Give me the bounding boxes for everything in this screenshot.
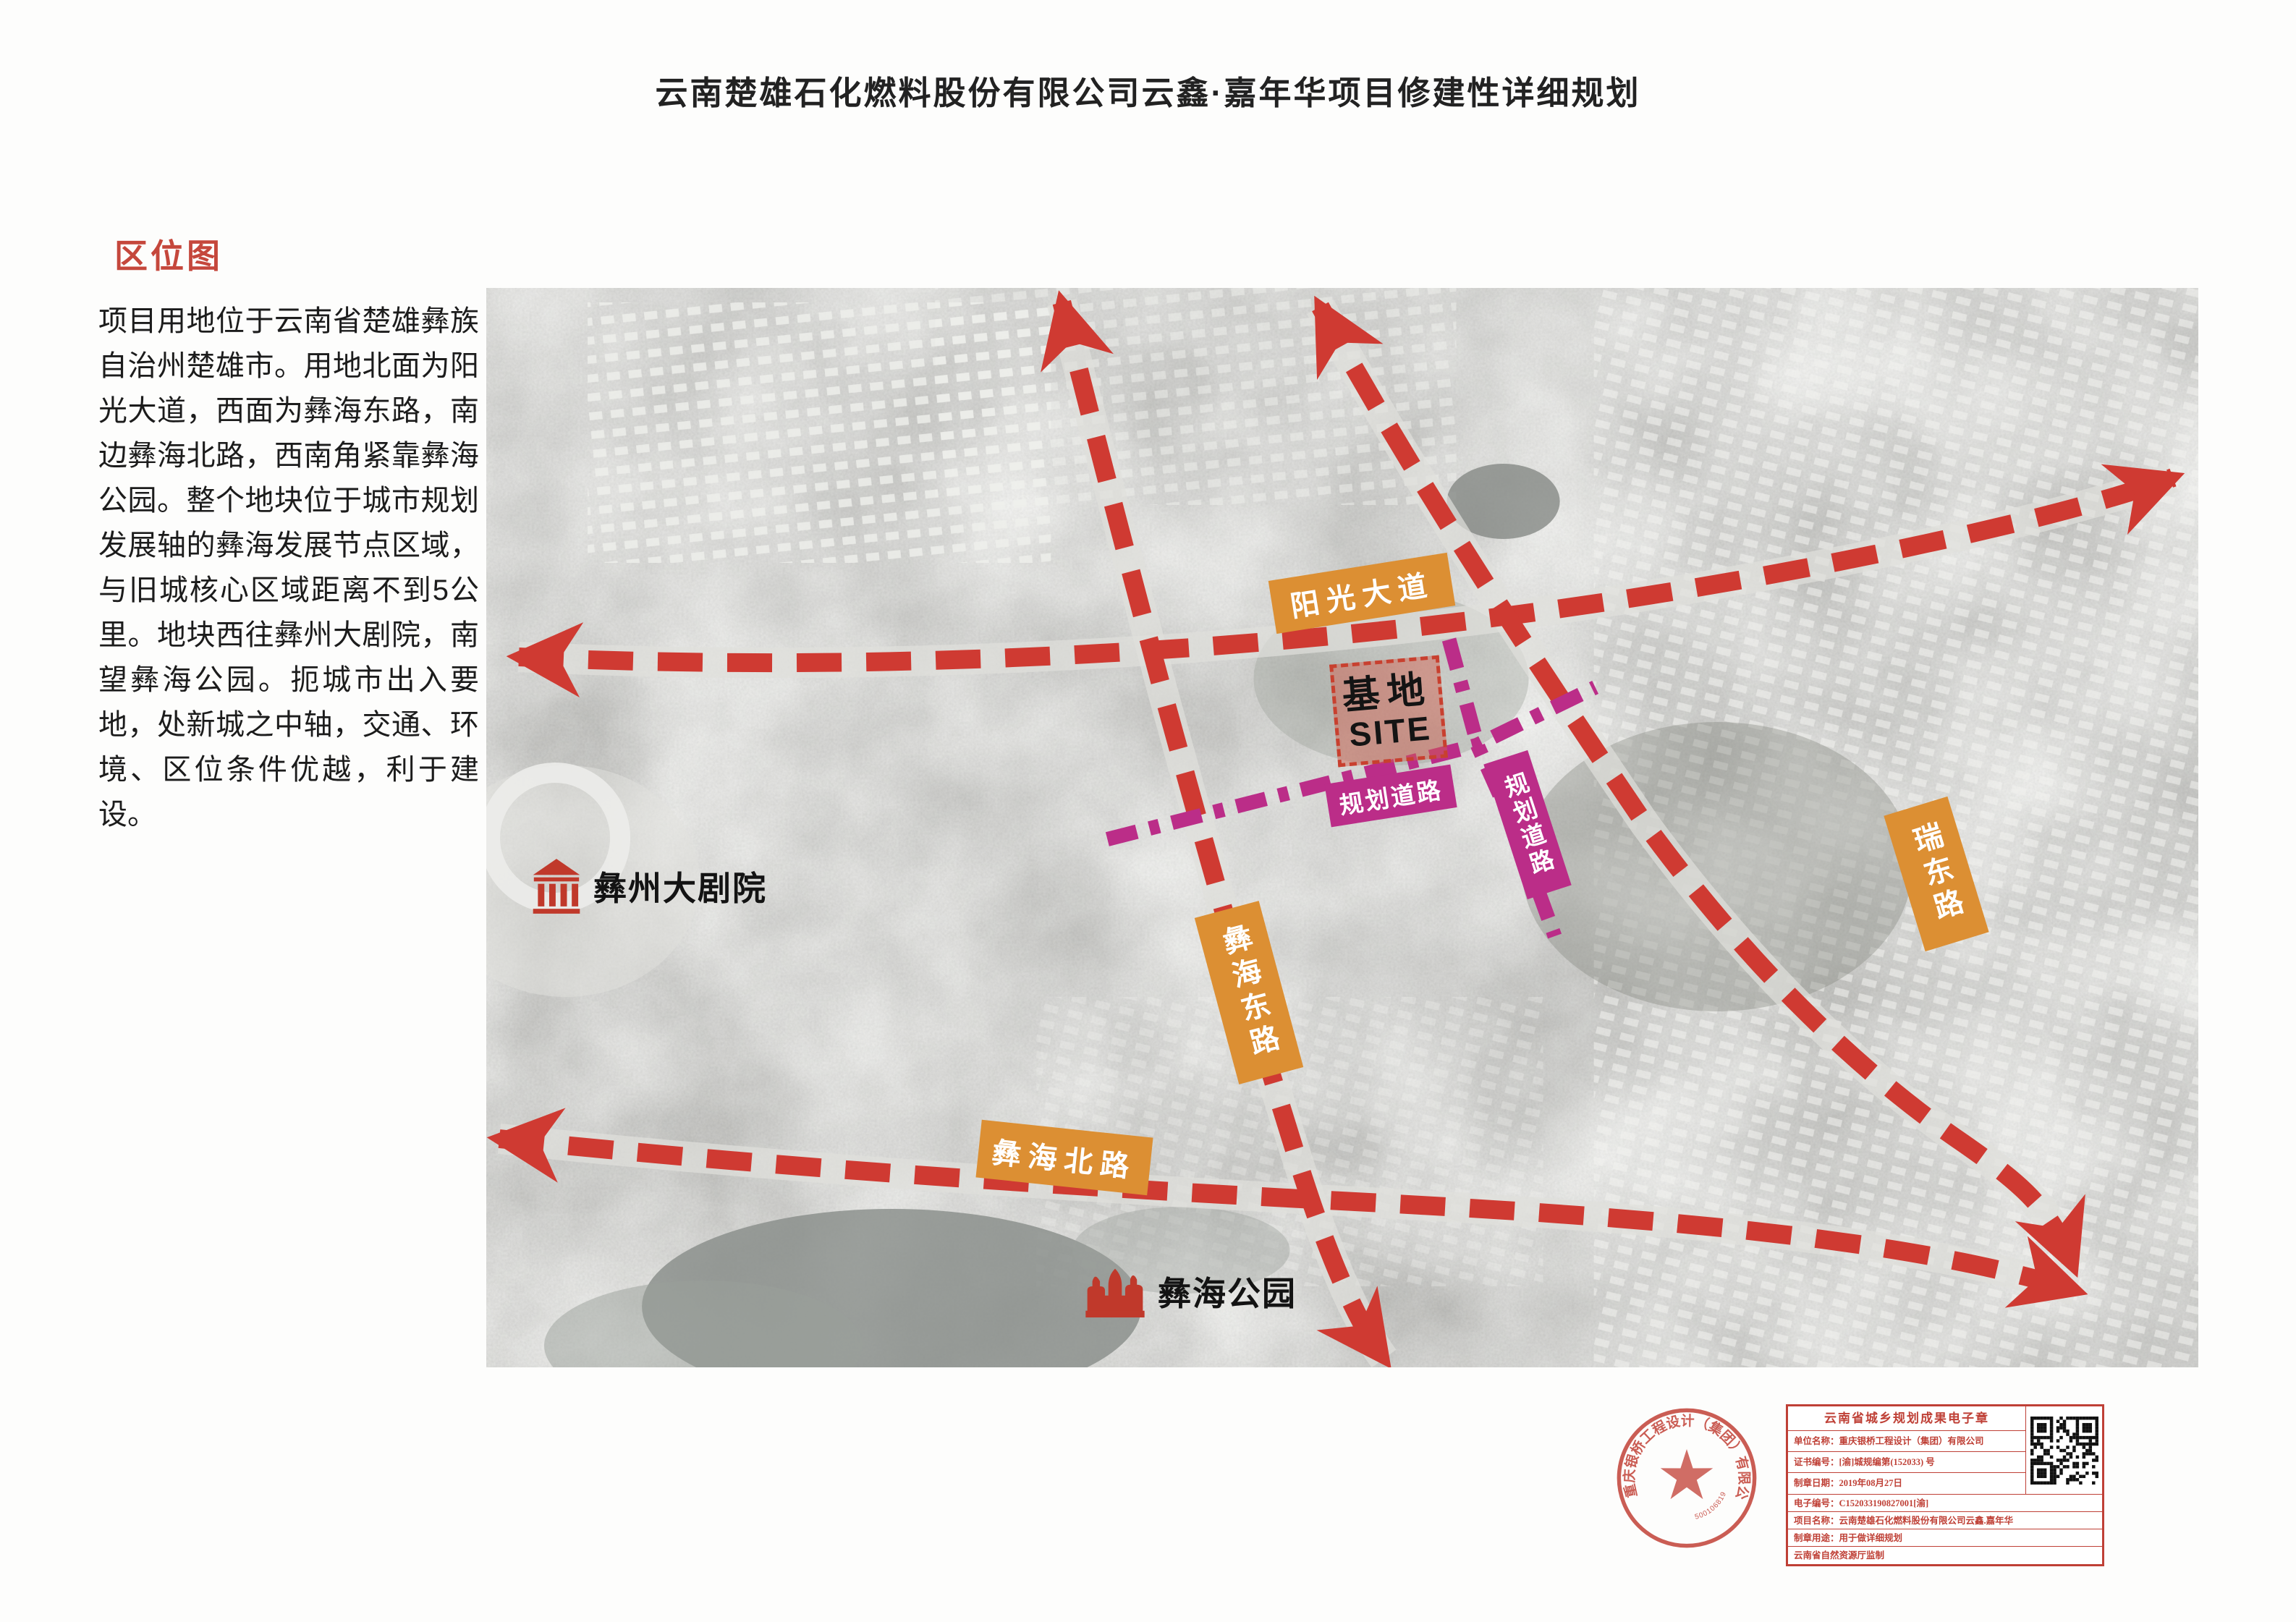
section-heading: 区位图 [114, 230, 223, 278]
page-title: 云南楚雄石化燃料股份有限公司云鑫·嘉年华项目修建性详细规划 [0, 67, 2296, 114]
seal-row-usage-value: 用于做详细规划 [1839, 1533, 1903, 1543]
satellite-location-map: 基地 SITE 阳光大道 彝海东路 瑞东路 彝海北路 规划道路 规划道路 彝州大… [486, 288, 2198, 1367]
poi-theater: 彝州大剧院 [531, 858, 767, 914]
seal-row-date-value: 2019年08月27日 [1839, 1478, 1903, 1488]
seal-row-unit: 单位名称：重庆银桥工程设计（集团）有限公司 [1788, 1431, 2025, 1452]
qr-code [2030, 1417, 2098, 1485]
seal-row-usage-label: 制章用途： [1794, 1533, 1839, 1543]
company-seal-stamp: 重庆银桥工程设计（集团）有限公司 5001068195765 [1614, 1406, 1759, 1550]
seal-row-cert-value: [渝]城规编第(152033) 号 [1839, 1457, 1935, 1467]
seal-row-usage: 制章用途：用于做详细规划 [1788, 1529, 2102, 1547]
site-boundary-box: 基地 SITE [1329, 655, 1448, 768]
document-page: 云南楚雄石化燃料股份有限公司云鑫·嘉年华项目修建性详细规划 区位图 项目用地位于… [0, 0, 2296, 1622]
site-label-en: SITE [1347, 710, 1433, 753]
section-paragraph: 项目用地位于云南省楚雄彝族自治州楚雄市。用地北面为阳光大道，西面为彝海东路，南边… [98, 299, 479, 837]
seal-row-cert: 证书编号：[渝]城规编第(152033) 号 [1788, 1452, 2025, 1473]
seal-row-cert-label: 证书编号： [1794, 1457, 1839, 1467]
seal-row-footer-value: 云南省自然资源厅监制 [1794, 1550, 1884, 1561]
poi-theater-label: 彝州大剧院 [593, 862, 767, 910]
poi-park: 彝海公园 [1084, 1265, 1297, 1318]
seal-row-unit-label: 单位名称： [1794, 1436, 1839, 1446]
seal-star-icon [1661, 1449, 1713, 1499]
seal-row-eid-label: 电子编号： [1794, 1498, 1839, 1508]
seal-row-date: 制章日期：2019年08月27日 [1788, 1473, 2025, 1494]
seal-row-project: 项目名称：云南楚雄石化燃料股份有限公司云鑫.嘉年华 [1788, 1512, 2102, 1529]
seal-row-project-label: 项目名称： [1794, 1516, 1839, 1526]
electronic-seal-table: 云南省城乡规划成果电子章 单位名称：重庆银桥工程设计（集团）有限公司 证书编号：… [1786, 1404, 2104, 1566]
seal-row-footer: 云南省自然资源厅监制 [1788, 1547, 2102, 1564]
poi-park-label: 彝海公园 [1158, 1268, 1297, 1315]
park-castle-icon [1084, 1265, 1146, 1318]
qr-cell [2025, 1406, 2102, 1494]
seal-row-unit-value: 重庆银桥工程设计（集团）有限公司 [1839, 1436, 1984, 1446]
seal-row-date-label: 制章日期： [1794, 1478, 1839, 1488]
seal-row-eid-value: C152033190827001[渝] [1839, 1498, 1929, 1508]
theater-building-icon [531, 858, 582, 914]
seal-row-eid: 电子编号：C152033190827001[渝] [1788, 1495, 2102, 1512]
seal-table-title: 云南省城乡规划成果电子章 [1788, 1406, 2025, 1431]
seal-row-project-value: 云南楚雄石化燃料股份有限公司云鑫.嘉年华 [1839, 1516, 2014, 1526]
